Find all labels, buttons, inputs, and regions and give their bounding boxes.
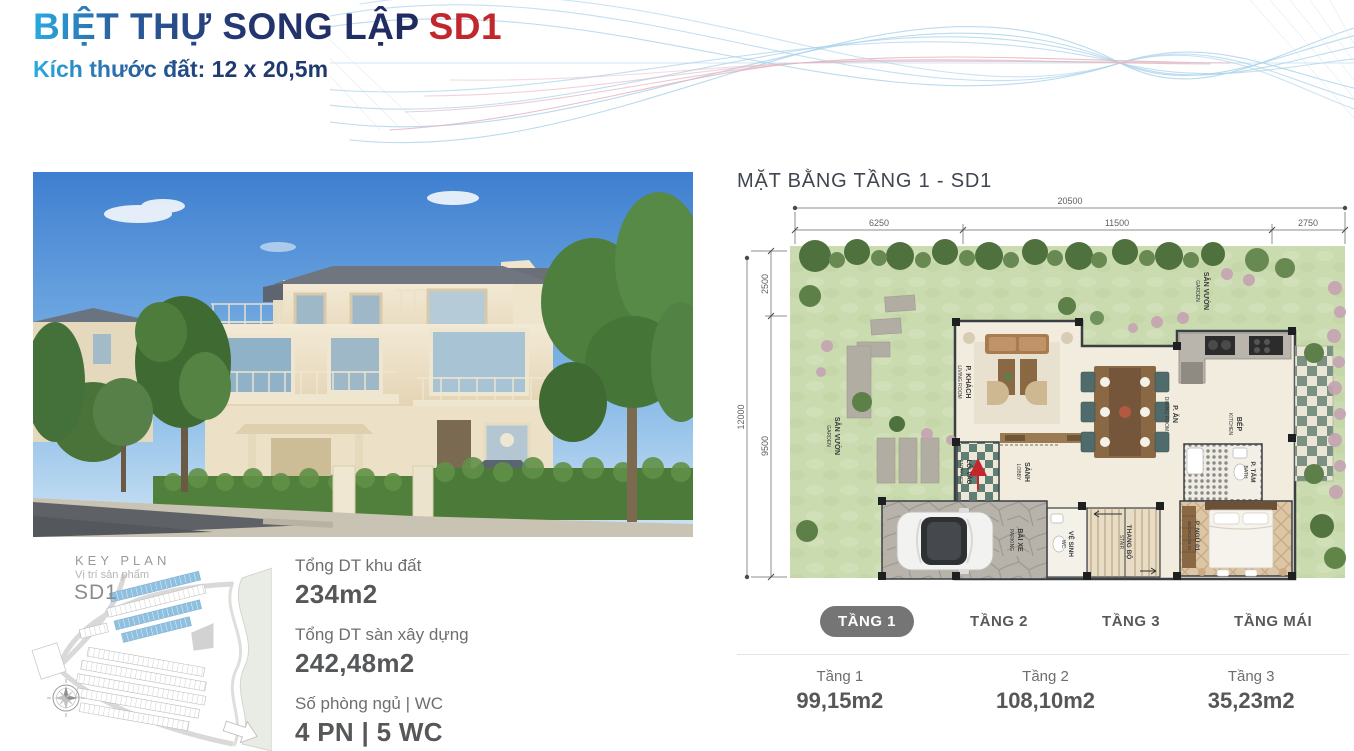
divider [737, 654, 1349, 655]
svg-text:2750: 2750 [1298, 218, 1318, 228]
villa-spec-page: BIỆT THỰ SONG LẬPSD1 Kích thước đất: 12 … [0, 0, 1354, 751]
villa-photo [33, 172, 693, 537]
keyplan-code: SD1 [74, 581, 118, 605]
svg-text:9500: 9500 [760, 436, 770, 456]
floor-area-summary: Tầng 1 99,15m2 Tầng 2 108,10m2 Tầng 3 35… [737, 668, 1354, 714]
floor-tabs: TẦNG 1 TẦNG 2 TẦNG 3 TẦNG MÁI [820, 606, 1330, 637]
page-title: BIỆT THỰ SONG LẬPSD1 [33, 6, 502, 48]
side-patio [1295, 343, 1333, 484]
floor-area-value: 99,15m2 [737, 688, 943, 714]
floor-area-label: Tầng 2 [943, 668, 1149, 685]
label-entrance: LỐI VÀOENTRANCE [959, 460, 972, 485]
svg-text:2500: 2500 [760, 274, 770, 294]
spec-value: 234m2 [295, 579, 469, 610]
floor-area-value: 108,10m2 [943, 688, 1149, 714]
svg-text:12000: 12000 [737, 404, 746, 429]
spec-list: Tổng DT khu đất 234m2 Tổng DT sàn xây dự… [295, 556, 469, 748]
car-icon [897, 508, 993, 574]
floor-area-label: Tầng 1 [737, 668, 943, 685]
tab-tang-2[interactable]: TẦNG 2 [952, 606, 1046, 637]
spec-land-area: Tổng DT khu đất 234m2 [295, 556, 469, 610]
label-lobby: SẢNHLOBBY [1015, 462, 1032, 482]
floorplan-drawing: 20500 6250 11500 2750 12000 2500 9500 [737, 196, 1354, 594]
tab-tang-mai[interactable]: TẦNG MÁI [1216, 606, 1330, 637]
key-plan-map [28, 548, 272, 751]
tab-tang-3[interactable]: TẦNG 3 [1084, 606, 1178, 637]
spec-label: Số phòng ngủ | WC [295, 694, 469, 714]
dining-room [1081, 366, 1169, 458]
page-title-code: SD1 [429, 6, 502, 47]
spec-bedrooms-wc: Số phòng ngủ | WC 4 PN | 5 WC [295, 694, 469, 748]
header: BIỆT THỰ SONG LẬPSD1 Kích thước đất: 12 … [33, 6, 502, 83]
floor-area-1: Tầng 1 99,15m2 [737, 668, 943, 714]
spec-label: Tổng DT khu đất [295, 556, 469, 576]
floor-area-label: Tầng 3 [1148, 668, 1354, 685]
label-bedroom: P. NGỦ 01BEDROOM 01 [1187, 521, 1202, 552]
wc-room [1047, 508, 1087, 577]
floor-area-2: Tầng 2 108,10m2 [943, 668, 1149, 714]
living-room [963, 332, 1073, 424]
river-band [238, 568, 272, 751]
page-subtitle: Kích thước đất: 12 x 20,5m [33, 56, 502, 83]
label-living-room: P. KHÁCHLIVING ROOM [956, 365, 973, 398]
spec-label: Tổng DT sàn xây dựng [295, 625, 469, 645]
spec-value: 4 PN | 5 WC [295, 717, 469, 748]
svg-text:20500: 20500 [1057, 196, 1082, 206]
spec-value: 242,48m2 [295, 648, 469, 679]
page-title-text: BIỆT THỰ SONG LẬP [33, 6, 420, 47]
svg-text:11500: 11500 [1105, 218, 1129, 228]
floorplan-title: MẶT BẰNG TẦNG 1 - SD1 [737, 170, 992, 193]
floor-area-3: Tầng 3 35,23m2 [1148, 668, 1354, 714]
svg-text:6250: 6250 [869, 218, 889, 228]
floor-area-value: 35,23m2 [1148, 688, 1354, 714]
spec-floor-area: Tổng DT sàn xây dựng 242,48m2 [295, 625, 469, 679]
tab-tang-1[interactable]: TẦNG 1 [820, 606, 914, 637]
label-parking: BÃI XEPARKING [1008, 528, 1025, 552]
keyplan-subtitle: Vị trí sản phẩm [75, 569, 149, 581]
keyplan-title: KEY PLAN [75, 553, 170, 568]
